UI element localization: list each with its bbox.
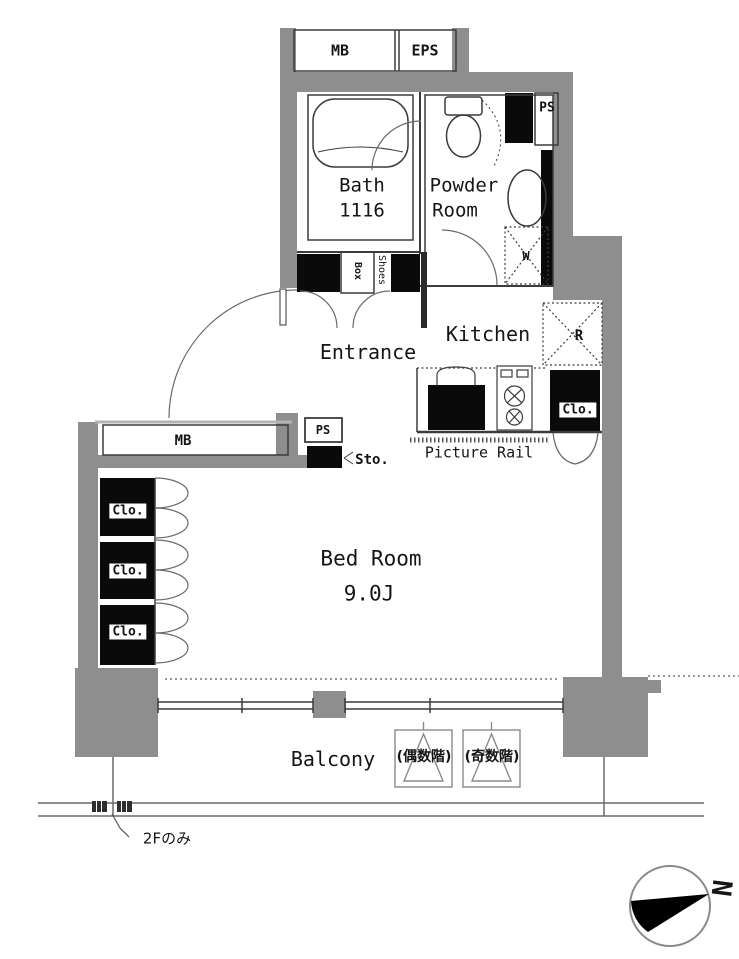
closet1-door-b: [155, 508, 188, 538]
closet3-door-a: [155, 603, 188, 633]
ps-lower-label: PS: [316, 424, 330, 436]
shoes-door-arc-left: [300, 291, 337, 328]
mb-top-label: MB: [331, 44, 349, 59]
fridge-label: R: [575, 329, 583, 343]
balcony-label: Balcony: [291, 749, 375, 769]
closet2-door-a: [155, 540, 188, 570]
kitchen-label: Kitchen: [446, 324, 530, 344]
duct-strip: [541, 150, 553, 287]
sink-bowl-icon: [437, 367, 475, 385]
hatch-odd-label: (奇数階): [465, 750, 520, 764]
hatch-even-label: (偶数階): [397, 750, 452, 764]
floor-note-label: 2Fのみ: [143, 832, 191, 847]
bedroom-name-label: Bed Room: [320, 549, 421, 570]
shoes-cabinet-left: [297, 254, 340, 292]
kitchen-closet-door-left: [553, 433, 575, 464]
toilet-tank-icon: [445, 97, 482, 115]
entrance-door-arc: [169, 290, 297, 418]
fridge-square-icon: [543, 303, 602, 365]
picture-rail-label: Picture Rail: [425, 446, 533, 461]
kitchen-sink-base: [428, 385, 485, 430]
north-compass-icon: [630, 866, 710, 946]
hall-kitchen-wall: [421, 252, 427, 328]
mb-side-label: MB: [175, 434, 192, 448]
powder-room-label-1: Powder: [430, 177, 499, 196]
washbasin-icon: [508, 170, 546, 226]
shoes-box-outer-label: Shoes: [376, 255, 386, 285]
shoes-cabinet-right: [391, 254, 420, 292]
powder-door-arc: [442, 230, 497, 285]
powder-room-label-2: Room: [432, 202, 478, 221]
kitchen-closet-door-right: [575, 433, 598, 464]
north-label: N: [707, 878, 736, 897]
shoes-door-arc-right: [353, 291, 390, 328]
eps-label: EPS: [411, 44, 438, 59]
picture-rail-lines: [165, 676, 739, 679]
closet2-door-b: [155, 570, 188, 600]
kitchen-closet-block: [550, 370, 600, 432]
ps-upper-label: PS: [539, 102, 555, 115]
bathtub-icon: [313, 99, 408, 167]
floor-note-marks: [92, 801, 132, 837]
entrance-label: Entrance: [320, 342, 416, 362]
storage-block: [307, 446, 342, 468]
bath-size-label: 1116: [339, 202, 385, 221]
bath-name-label: Bath: [339, 177, 385, 196]
bedroom-size-label: 9.0J: [344, 584, 395, 605]
toilet-bowl-icon: [447, 115, 481, 157]
storage-label: Sto.: [355, 453, 389, 467]
closet3-door-b: [155, 633, 188, 663]
closet1-door-a: [155, 478, 188, 508]
window-lines: [158, 698, 563, 713]
washer-label: W: [522, 250, 529, 262]
closet-label-3: Clo.: [109, 625, 146, 640]
entrance-door-leaf: [280, 289, 286, 325]
plan-linework: [0, 0, 739, 959]
stove-icon: [497, 366, 532, 430]
ps-shaft-block: [505, 93, 533, 143]
meter-box-side-outline: [103, 425, 288, 455]
closet-label-1: Clo.: [109, 504, 146, 519]
kitchen-closet-label: Clo.: [559, 403, 596, 418]
closet-label-2: Clo.: [109, 564, 146, 579]
shoes-box-inner-label: Box: [352, 262, 362, 280]
floor-plan: MB EPS Bath 1116 Powder Room PS W Kitche…: [0, 0, 739, 959]
